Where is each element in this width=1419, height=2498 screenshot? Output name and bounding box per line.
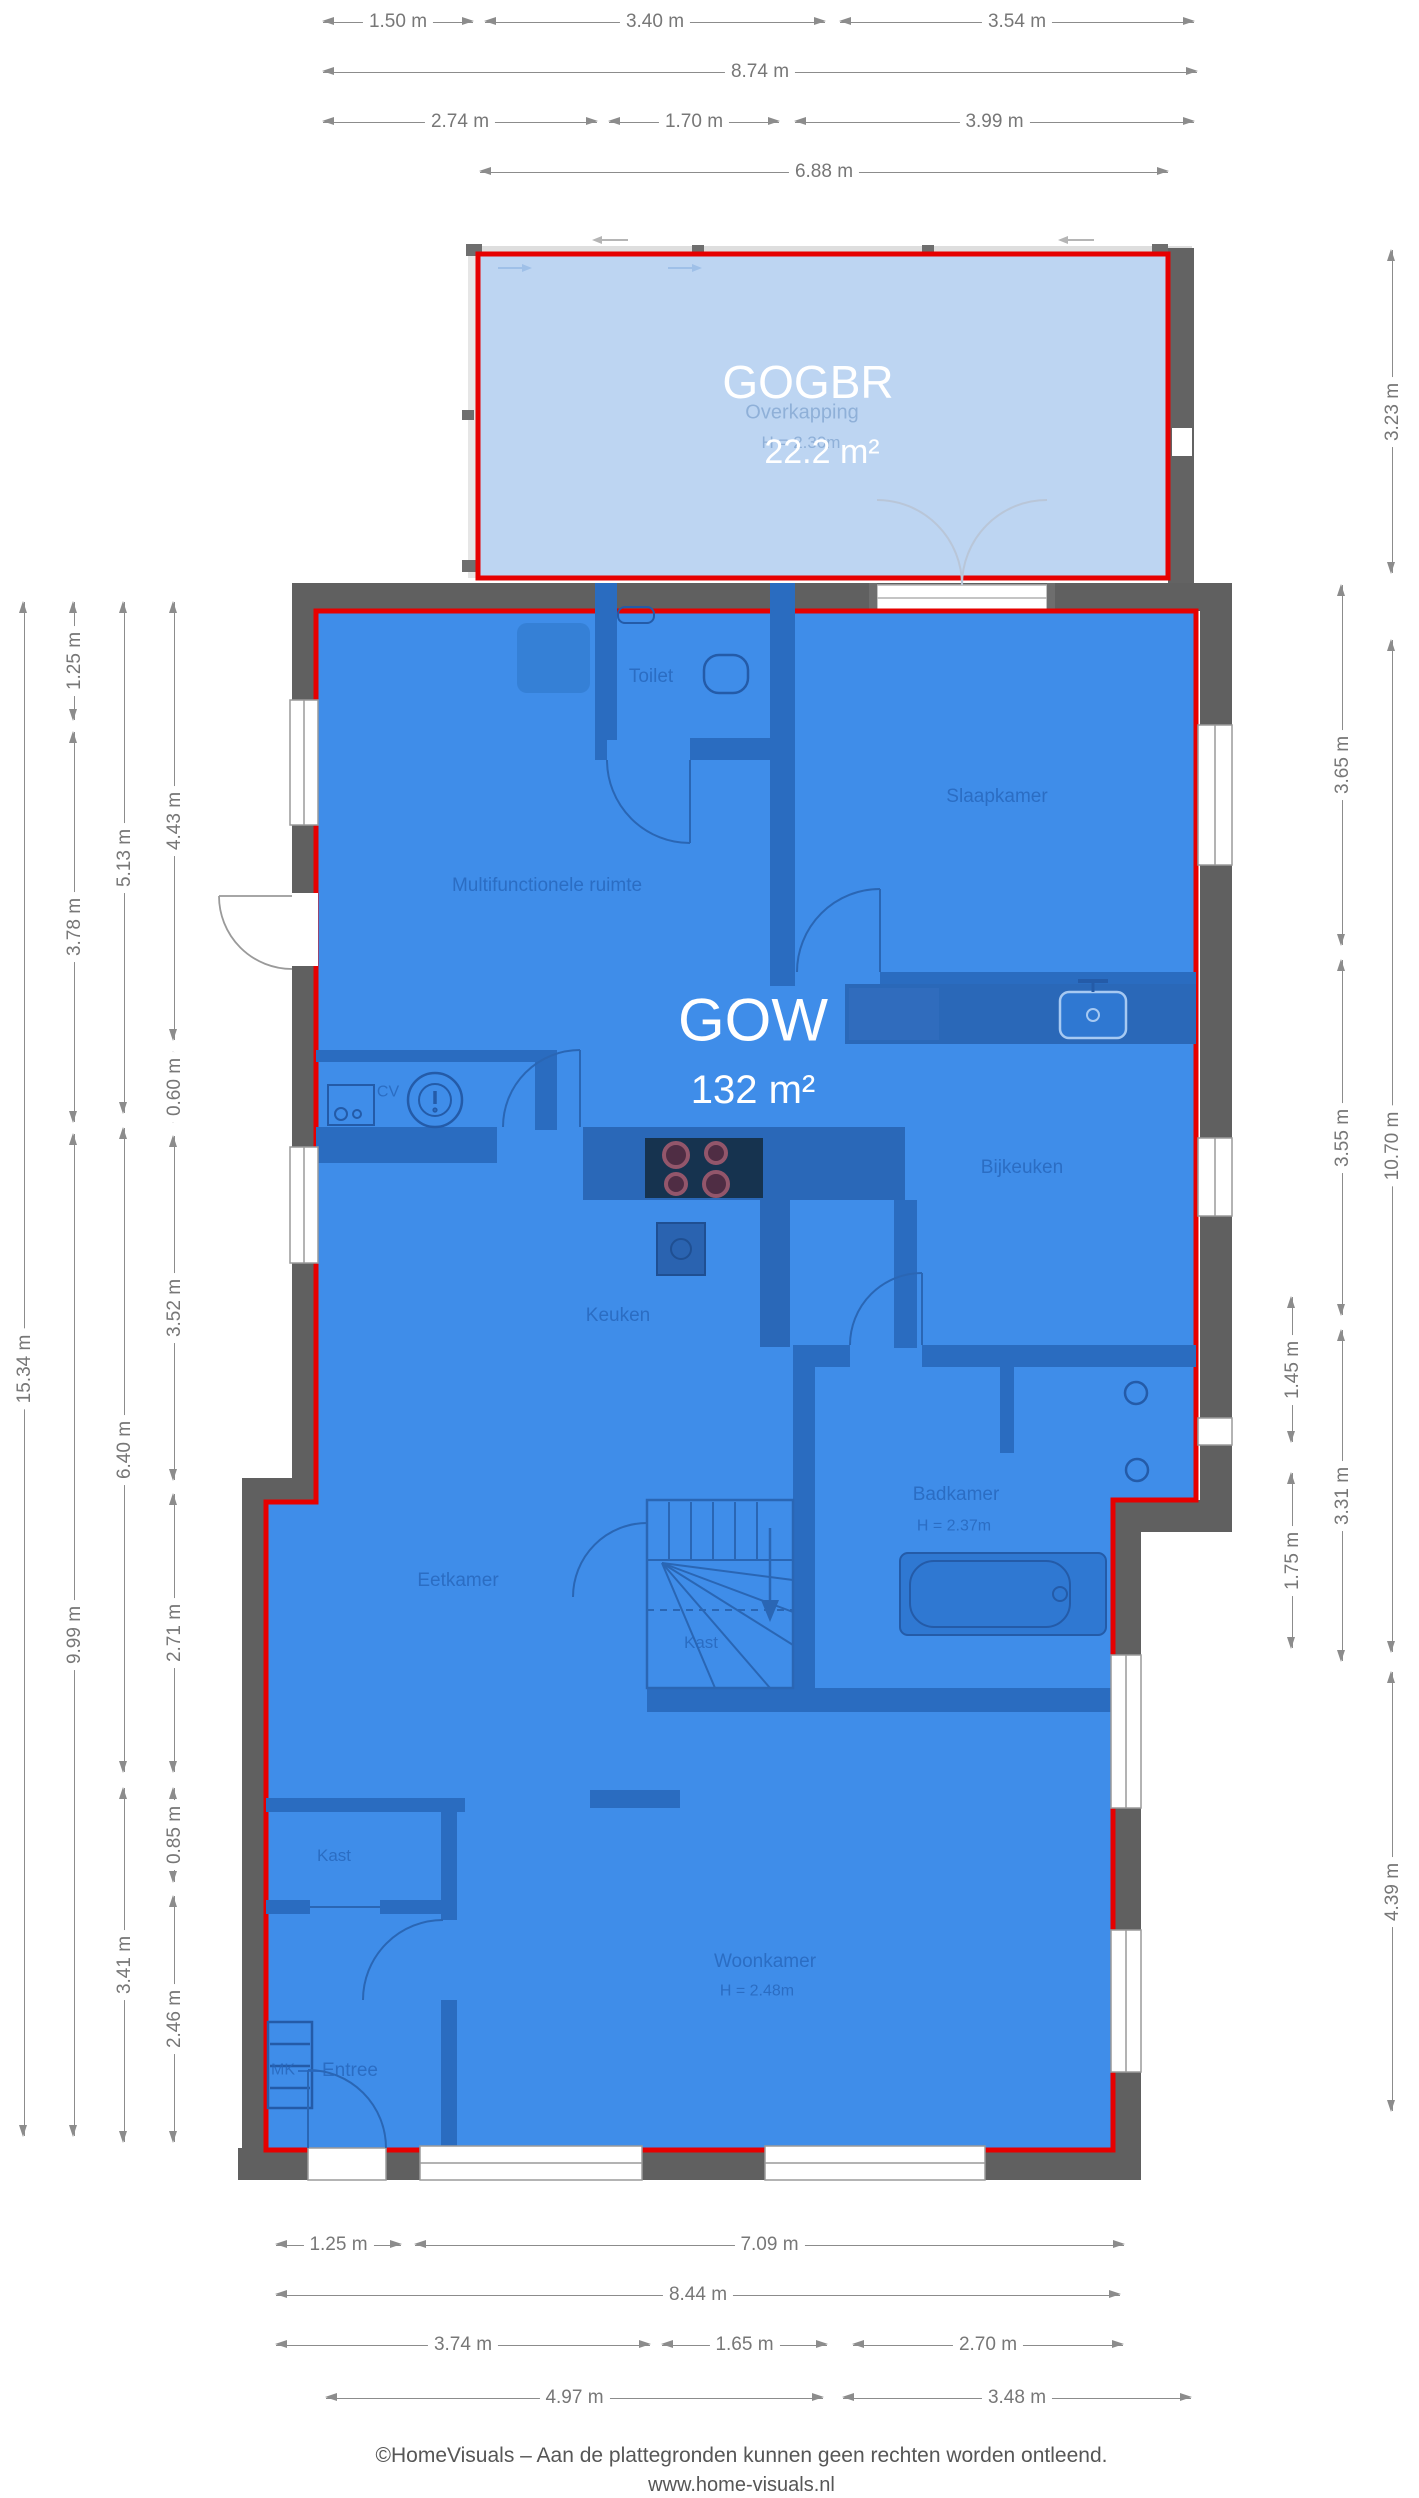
dimension-value: 1.25 m	[303, 2234, 373, 2256]
footer-website: www.home-visuals.nl	[238, 2474, 1245, 2497]
gow-area: 132 m²	[691, 1069, 816, 1111]
dimension-value: 15.34 m	[14, 1329, 36, 1410]
room-label-toilet: Toilet	[629, 667, 673, 687]
dimension-value: 0.60 m	[164, 1052, 186, 1122]
dimension-segment: 8.74 m	[323, 72, 1197, 73]
room-label-slaapkamer: Slaapkamer	[946, 787, 1047, 807]
dimension-segment: 1.50 m	[323, 22, 473, 23]
dimension-value: 5.13 m	[114, 822, 136, 892]
dimension-segment: 10.70 m	[1392, 640, 1393, 1652]
dimension-value: 0.85 m	[164, 1800, 186, 1870]
floorplan-graphics	[0, 0, 1419, 2498]
dimension-segment: 3.65 m	[1342, 585, 1343, 945]
dimension-segment: 1.75 m	[1292, 1473, 1293, 1648]
dimension-segment: 6.40 m	[124, 1128, 125, 1772]
dimension-segment: 15.34 m	[24, 602, 25, 2136]
dimension-segment: 3.99 m	[795, 122, 1194, 123]
dimension-value: 1.70 m	[659, 111, 729, 133]
dimension-value: 2.46 m	[164, 1984, 186, 2054]
dimension-segment: 2.46 m	[174, 1896, 175, 2142]
dimension-segment: 1.25 m	[74, 602, 75, 720]
dimension-value: 3.65 m	[1332, 730, 1354, 800]
dimension-value: 3.41 m	[114, 1930, 136, 2000]
dimension-segment: 0.85 m	[174, 1788, 175, 1882]
dimension-segment: 3.54 m	[840, 22, 1194, 23]
dimension-value: 3.40 m	[620, 11, 690, 33]
dimension-value: 3.55 m	[1332, 1102, 1354, 1172]
dimension-segment: 3.48 m	[843, 2398, 1191, 2399]
room-height-badkamer: H = 2.37m	[917, 1519, 991, 1536]
dimension-value: 3.48 m	[982, 2387, 1052, 2409]
dimension-value: 1.75 m	[1282, 1525, 1304, 1595]
dimension-value: 3.74 m	[428, 2334, 498, 2356]
dimension-value: 7.09 m	[734, 2234, 804, 2256]
dimension-segment: 4.43 m	[174, 602, 175, 1040]
gogbr-code: GOGBR	[722, 358, 893, 406]
dimension-segment: 3.31 m	[1342, 1330, 1343, 1661]
room-label-keuken: Keuken	[586, 1306, 650, 1326]
mk-leader-line	[298, 2070, 320, 2072]
dimension-value: 3.52 m	[164, 1273, 186, 1343]
room-label-bijkeuken: Bijkeuken	[981, 1158, 1063, 1178]
overkapping-wall-gap	[1172, 428, 1192, 456]
dimension-value: 3.23 m	[1382, 376, 1404, 446]
dimension-segment: 3.23 m	[1392, 250, 1393, 573]
dimension-segment: 6.88 m	[480, 172, 1168, 173]
dimension-value: 8.74 m	[725, 61, 795, 83]
room-label-badkamer: Badkamer	[913, 1485, 1000, 1505]
room-label-mk: MK	[271, 2063, 295, 2080]
dimension-value: 8.44 m	[663, 2284, 733, 2306]
room-height-woonkamer: H = 2.48m	[720, 1984, 794, 2001]
dimension-value: 2.70 m	[953, 2334, 1023, 2356]
floorplan-page: Overkapping H = 2.30m GOGBR 22.2 m² GOW …	[0, 0, 1419, 2498]
dimension-segment: 2.74 m	[323, 122, 597, 123]
dimension-segment: 7.09 m	[415, 2245, 1124, 2246]
dimension-value: 2.71 m	[164, 1598, 186, 1668]
dimension-segment: 5.13 m	[124, 602, 125, 1113]
exterior-side-door	[219, 893, 318, 969]
dimension-segment: 3.78 m	[74, 732, 75, 1122]
dimension-segment: 4.39 m	[1392, 1672, 1393, 2111]
dimension-segment: 3.40 m	[485, 22, 825, 23]
dimension-segment: 1.45 m	[1292, 1297, 1293, 1442]
dimension-value: 3.31 m	[1332, 1460, 1354, 1530]
bijkeuken-fixtures	[845, 980, 1196, 1044]
dimension-value: 1.50 m	[363, 11, 433, 33]
dimension-value: 4.43 m	[164, 786, 186, 856]
skylight-shaft	[517, 623, 590, 693]
dimension-segment: 3.41 m	[124, 1788, 125, 2142]
dimension-segment: 1.65 m	[662, 2345, 827, 2346]
room-label-kast: Kast	[317, 1847, 351, 1865]
dimension-segment: 3.55 m	[1342, 960, 1343, 1315]
room-label-cv: CV	[377, 1085, 399, 1102]
dimension-segment: 1.70 m	[609, 122, 779, 123]
dimension-segment: 8.44 m	[276, 2295, 1120, 2296]
dimension-value: 3.78 m	[64, 892, 86, 962]
dimension-segment: 3.52 m	[174, 1136, 175, 1480]
gow-code: GOW	[678, 989, 828, 1052]
dimension-segment: 2.71 m	[174, 1494, 175, 1772]
dimension-segment: 2.70 m	[853, 2345, 1123, 2346]
gow-region	[266, 611, 1196, 2150]
dimension-value: 4.97 m	[539, 2387, 609, 2409]
dimension-value: 1.25 m	[64, 626, 86, 696]
room-label-kast-stairs: Kast	[684, 1634, 718, 1652]
room-label-eetkamer: Eetkamer	[417, 1571, 498, 1591]
dimension-value: 9.99 m	[64, 1600, 86, 1670]
dimension-value: 1.65 m	[709, 2334, 779, 2356]
gogbr-area: 22.2 m²	[764, 435, 879, 471]
dimension-value: 10.70 m	[1382, 1106, 1404, 1187]
dimension-value: 2.74 m	[425, 111, 495, 133]
dimension-segment: 1.25 m	[276, 2245, 401, 2246]
room-label-entree: Entree	[322, 2061, 378, 2081]
dimension-segment: 4.97 m	[326, 2398, 823, 2399]
dimension-value: 1.45 m	[1282, 1334, 1304, 1404]
dimension-value: 6.40 m	[114, 1415, 136, 1485]
room-label-woonkamer: Woonkamer	[714, 1952, 816, 1972]
dimension-value: 3.54 m	[982, 11, 1052, 33]
dimension-value: 4.39 m	[1382, 1856, 1404, 1926]
footer-disclaimer: ©HomeVisuals – Aan de plattegronden kunn…	[238, 2444, 1245, 2468]
dimension-value: 6.88 m	[789, 161, 859, 183]
room-label-multifunctionele-ruimte: Multifunctionele ruimte	[452, 876, 642, 896]
dimension-segment: 9.99 m	[74, 1134, 75, 2136]
dimension-value: 3.99 m	[959, 111, 1029, 133]
dimension-segment: 3.74 m	[276, 2345, 650, 2346]
dimension-segment: 0.60 m	[174, 1052, 175, 1122]
